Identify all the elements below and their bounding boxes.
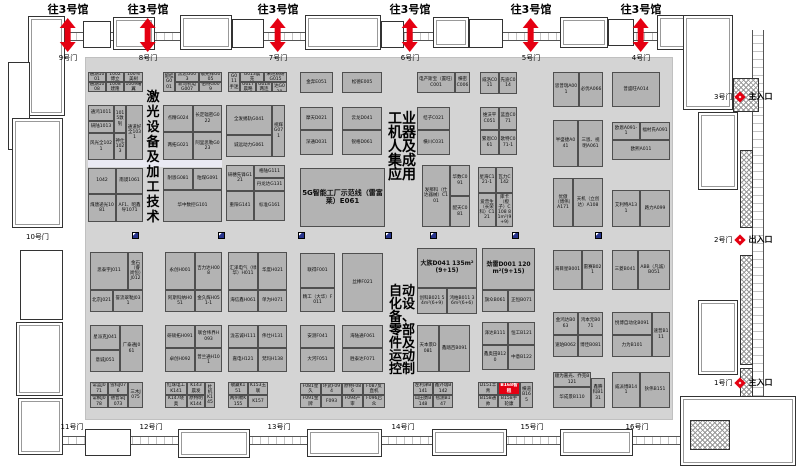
booth: 左利津B141 — [413, 382, 433, 395]
booth: 海陆通F061 — [342, 325, 383, 348]
facility-icon — [385, 232, 392, 239]
booth: 路力A099 — [640, 190, 670, 227]
entrance-diamond-icon — [735, 91, 746, 102]
booth: 通道好全1031 — [126, 105, 143, 160]
zone-title-1: 工业机器人及集成应用 — [387, 112, 417, 182]
booth: 天机（立创达）A108 — [573, 178, 603, 227]
facility-icon — [595, 232, 602, 239]
booth: 研穗先锋G121 — [226, 165, 254, 191]
booth: K147晓奥 — [165, 395, 187, 408]
gate-top: 往3号馆7号门 — [258, 1, 299, 63]
gate-label: 7号门 — [269, 53, 287, 63]
to-hall3-label: 往3号馆 — [128, 1, 169, 17]
gate-top: 往3号馆5号门 — [511, 1, 552, 63]
entrance-label: 主入口 — [748, 377, 772, 388]
booth: 新马机电G007 — [175, 82, 199, 92]
gate-entrance: 2号门出入口 — [714, 234, 772, 245]
facility-icon — [512, 232, 519, 239]
booth: 金奔E051 — [300, 72, 333, 93]
facility-icon — [132, 232, 139, 239]
booth: 德普罕J073 — [108, 395, 128, 408]
booth: F087反直机 — [363, 383, 385, 395]
booth: 5G智能工厂示范线（雷富莱）E061 — [300, 168, 385, 227]
building-outline — [560, 429, 633, 456]
booth: 点精G024 — [163, 105, 193, 132]
booth: 神仕1023 — [114, 133, 126, 160]
booth: 黑思G003 — [175, 72, 199, 82]
booth: 原特明K144 — [187, 395, 205, 408]
booth: 诚远动力G061 — [226, 135, 272, 157]
booth: 锐格D061 — [342, 130, 382, 155]
building-outline — [18, 398, 63, 455]
booth: 鑫外瑞B142 — [433, 382, 453, 395]
booth: 松德E005 — [342, 72, 382, 93]
booth: 研陆1013 — [88, 121, 114, 133]
booth: 星派克J041 — [90, 325, 120, 350]
booth: 欧熙A011 — [612, 140, 670, 160]
booth: 格陆G111 — [254, 165, 285, 178]
facility-icon — [430, 232, 437, 239]
booth: 敬藏K151 — [228, 382, 248, 395]
booth: 三木J075 — [128, 382, 143, 408]
booth: 标准G161 — [254, 191, 285, 221]
booth: G011手迷 — [228, 72, 240, 92]
booth: 两州勒K155 — [228, 395, 248, 408]
booth: 金久辉H051-1 — [195, 290, 222, 312]
booth: K153玉联 — [248, 382, 268, 395]
booth: 精工（大华）F011 — [300, 288, 335, 312]
booth: 风光全1021 — [88, 133, 114, 160]
booth: 原特F086 — [342, 383, 363, 395]
booth: 歌特C071-1 — [499, 130, 517, 155]
gate-label: 2号门 — [714, 235, 732, 245]
booth: 三恩、视明A061 — [578, 120, 603, 167]
gate-top: 往3号馆8号门 — [128, 1, 169, 63]
booth: 1008建隆 — [106, 82, 124, 92]
booth: D151丰青 — [478, 382, 498, 395]
gate-label: 8号门 — [139, 53, 157, 63]
booth: F081星久 — [300, 383, 321, 395]
hatched-area — [690, 420, 730, 450]
booth: B158通帅 — [478, 395, 498, 408]
booth: 摩天D021 — [300, 107, 333, 130]
booth: 天本景D081 — [417, 325, 439, 372]
booth: 泷志诚H111 — [228, 325, 258, 348]
booth: 海信鑫H061 — [228, 290, 258, 312]
booth: 耐恩G081 — [163, 168, 193, 190]
booth: 劲雷D001 120m²(9+15) — [482, 248, 535, 290]
booth: 创科B021 54m²(6+9) — [417, 288, 447, 314]
gate-label: 14号门 — [392, 422, 415, 432]
booth: 横道B165 — [520, 382, 533, 408]
booth: 库卡（橙子）C108 81m²(9+9) — [496, 193, 513, 227]
booth: 留桂G001 — [163, 72, 175, 92]
booth: 旗众B061 — [482, 290, 508, 312]
booth: 1042 — [88, 168, 116, 194]
booth: 顺为嘉光、乔克B121 — [553, 372, 591, 387]
booth: 单为H071 — [258, 290, 287, 312]
booth: 北京J021 — [90, 290, 113, 312]
booth: 意诚J051 — [90, 350, 120, 372]
booth: 全发掦轨G041 — [226, 105, 272, 135]
booth: 发那科（仕达器械）C101 — [422, 165, 450, 227]
booth: 伟仕H131 — [258, 325, 287, 348]
floor-plan: 通湖10011002博立100%美树通湖10081008建隆1009曙翼留桂G0… — [0, 0, 800, 471]
booth: 普兰通H101 — [195, 348, 222, 372]
gate-label: 10号门 — [26, 232, 49, 242]
gate-top: 往3号馆4号门 — [621, 1, 662, 63]
booth: 三菱B041 — [612, 250, 638, 290]
booth: 中意B122 — [508, 345, 535, 370]
booth: 力为B101 — [612, 335, 652, 357]
booth: 通湖1001 — [88, 72, 106, 82]
booth: 鑫踏百B091 — [439, 325, 470, 372]
booth: 优傲（博伟）A171 — [553, 178, 573, 227]
to-hall3-label: 往3号馆 — [48, 1, 89, 17]
booth: 1015敦钊 — [114, 105, 126, 133]
booth: 桔子C021 — [417, 107, 450, 130]
booth: 广泰通J061 — [120, 325, 143, 372]
booth: 杜机K145 — [205, 382, 215, 408]
booth: 横密C006 — [455, 72, 470, 93]
booth: 思普瑞A001 — [553, 72, 579, 107]
booth: 正恒B071 — [508, 290, 535, 312]
building-outline — [12, 118, 63, 228]
booth: 恒工B121 — [508, 322, 535, 345]
booth: 蓝直C071 — [499, 107, 517, 130]
booth: 悦博自动化B091 — [612, 312, 652, 335]
booth: G017晨略 — [240, 82, 256, 92]
building-outline — [20, 250, 63, 320]
booth: 配天C081 — [450, 196, 470, 227]
gate-label: 13号门 — [268, 422, 291, 432]
booth: 粕煤G091 — [193, 168, 222, 190]
gate-entrance: 1号门主入口 — [714, 377, 772, 388]
booth: 维沃平C051 — [480, 107, 499, 130]
booth: 华中数控G101 — [163, 190, 222, 222]
booth: 金石（睿尚恒）J012 — [128, 252, 143, 290]
booth: 嘉电H121 — [228, 348, 258, 372]
booth: 长定辐密G022 — [193, 105, 222, 132]
double-arrow-icon — [523, 18, 539, 52]
booth: 必优A066 — [579, 72, 603, 107]
booth: 常蓝J071 — [90, 382, 108, 395]
entrance-label: 出入口 — [748, 234, 772, 245]
booth: 鑫奥田B120 — [482, 345, 508, 370]
double-arrow-icon — [270, 18, 286, 52]
booth: 鸿本元B071 — [578, 312, 603, 335]
booth: 爱普生（长荣科）C121 — [478, 193, 496, 227]
booth: K157 — [248, 395, 268, 408]
booth: 永创H001 — [165, 252, 195, 290]
booth: 重阳G141 — [226, 191, 254, 221]
booth: 普盛旺A014 — [612, 72, 660, 107]
booth: 环武F094 — [321, 383, 342, 395]
hatched-area — [740, 255, 753, 365]
booth: 誉流翠勒J031 — [113, 290, 143, 312]
booth: 金鸿达B063 — [553, 312, 578, 335]
booth: F096启众 — [363, 395, 385, 408]
building-outline — [16, 322, 63, 396]
facility-icon — [298, 232, 305, 239]
booth: 联得F001 — [300, 253, 335, 288]
booth: 1009曙翼 — [124, 82, 143, 92]
booth: 丹龙达G131 — [254, 178, 285, 191]
booth: 电产斯宝（置旺）C001 — [417, 72, 455, 93]
booth: 梵玛H138 — [258, 348, 287, 372]
entrance-label: 主入口 — [748, 91, 772, 102]
gate-label: 5号门 — [522, 53, 540, 63]
booth: 横川C031 — [417, 130, 450, 155]
booth: 煤唐递光1081 — [88, 194, 116, 222]
building-outline — [432, 429, 507, 456]
to-hall3-label: 往3号馆 — [511, 1, 552, 17]
booth: 大河F051 — [300, 348, 335, 372]
booth: 两拓G021 — [163, 132, 193, 160]
booth: 通湖1008 — [88, 82, 106, 92]
gate-top: 往3号馆6号门 — [390, 1, 431, 63]
booth: 毯测B147 — [433, 395, 453, 408]
entrance-diamond-icon — [735, 377, 746, 388]
hatched-area — [740, 150, 753, 228]
building-outline — [469, 19, 503, 48]
booth: 视辉G071 — [272, 105, 285, 157]
building-outline — [698, 300, 738, 375]
to-hall3-label: 往3号馆 — [621, 1, 662, 17]
gate-label: 9号门 — [59, 53, 77, 63]
booth: 深通D031 — [300, 130, 333, 155]
booth: F091金牌 — [300, 395, 321, 408]
booth: 伯特G009 — [199, 82, 222, 92]
booth: K143晨发 — [187, 382, 205, 395]
building-outline — [698, 112, 738, 190]
double-arrow-icon — [633, 18, 649, 52]
booth: 通鸿1011 — [88, 105, 114, 121]
booth: 100%美树 — [124, 72, 143, 82]
booth: 云龙D041 — [342, 107, 382, 130]
gate-top: 往3号馆9号门 — [48, 1, 89, 63]
entrance-diamond-icon — [735, 234, 746, 245]
booth: 威派博B141 — [612, 372, 640, 408]
booth: 博佳B081 — [578, 335, 603, 357]
booth: 思泰宇J011 — [90, 252, 128, 290]
booth: 华度H021 — [258, 252, 287, 290]
booth: 先迪C014 — [499, 72, 517, 94]
to-hall3-label: 往3号馆 — [390, 1, 431, 17]
booth: 安测F041 — [300, 325, 335, 348]
building-outline — [433, 17, 469, 48]
booth: 华成景B110 — [553, 387, 591, 408]
booth: ABB（凡诚）B051 — [638, 250, 670, 290]
zone-title-2: 自动化设备、零部件及运动控制 — [388, 285, 416, 376]
to-hall3-label: 往3号馆 — [258, 1, 299, 17]
gate-label: 1号门 — [714, 378, 732, 388]
booth: B158手轮康 — [498, 395, 520, 408]
booth: 华数C091 — [450, 165, 470, 196]
booth: G018两连 — [256, 82, 272, 92]
booth: 徐风达G020 — [272, 82, 287, 92]
booth: 山田勇B148 — [413, 395, 433, 408]
double-arrow-icon — [140, 18, 156, 52]
booth: 繁恩C061 — [480, 130, 499, 155]
booth: 来旺精研G015 — [264, 72, 287, 82]
booth: AF1、昭鑫导1071 — [116, 194, 143, 222]
booth: 欧恩A091-1 — [612, 122, 640, 140]
gate-label: 3号门 — [714, 92, 732, 102]
booth: 胜泰达F071 — [342, 348, 383, 372]
gate-label: 16号门 — [626, 422, 649, 432]
booth: 丝棒F021 — [342, 253, 383, 312]
booth: 汇泽电气（绿华）H011 — [228, 252, 258, 290]
facility-icon — [218, 232, 225, 239]
booth: 雷赛B021 — [582, 250, 603, 290]
gate-label: 12号门 — [140, 422, 163, 432]
booth: 敬光拜G005 — [199, 72, 222, 82]
booth: 大族D041 135m²(9+15) — [417, 248, 477, 288]
booth: 威洛C011 — [480, 72, 499, 94]
building-outline — [85, 429, 131, 456]
booth: 鑫腾科B131 — [591, 378, 605, 408]
booth: 艾利特A131 — [612, 190, 640, 227]
booth: 速普B111 — [652, 312, 670, 357]
booth: 泽达B111 — [482, 322, 508, 345]
zone-title-0: 激光设备及加工技术 — [145, 90, 161, 225]
booth: 瓦力C142 — [496, 167, 513, 193]
booth: 海目星B001 — [553, 250, 582, 290]
booth: 速珀B062 — [553, 335, 578, 357]
booth: 狄伟B151 — [640, 372, 670, 408]
booth: 雪科J076 — [108, 382, 128, 395]
gate-entrance: 3号门主入口 — [714, 91, 772, 102]
booth: 常枫J078 — [90, 395, 108, 408]
booth: 1002博立 — [106, 72, 124, 82]
booth: 吉力达H008 — [195, 252, 222, 290]
building-outline — [560, 17, 608, 48]
building-outline — [178, 429, 250, 458]
booth: 红珠电工K141 — [165, 382, 187, 395]
booth: G013晨充 — [240, 72, 264, 82]
booth: 鸿柏B011 36m²(6+6) — [447, 288, 477, 314]
double-arrow-icon — [402, 18, 418, 52]
booth: 阿里思勒G023 — [193, 132, 222, 160]
booth: 联合纬界H093 — [195, 325, 222, 348]
booth: 阿斯科纳H051 — [165, 290, 195, 312]
booth: F094产审 — [342, 395, 363, 408]
booth: 福村氏A091 — [640, 122, 670, 140]
double-arrow-icon — [60, 18, 76, 52]
gate-label: 11号门 — [61, 422, 84, 432]
booth: 半盛捷A041 — [553, 120, 578, 167]
booth: F093 — [321, 395, 342, 408]
building-outline — [180, 15, 232, 50]
booth: 南谟1061 — [116, 168, 143, 194]
booth: 研硕拓H091 — [165, 325, 195, 348]
booth: 星海C121-1 — [478, 167, 496, 193]
building-outline — [307, 429, 382, 457]
booth: 卓创H092 — [165, 348, 195, 372]
gate-label: 4号门 — [632, 53, 650, 63]
gate-label: 15号门 — [521, 422, 544, 432]
booth: B168智租 — [498, 382, 520, 395]
gate-label: 6号门 — [401, 53, 419, 63]
building-outline — [305, 15, 381, 50]
